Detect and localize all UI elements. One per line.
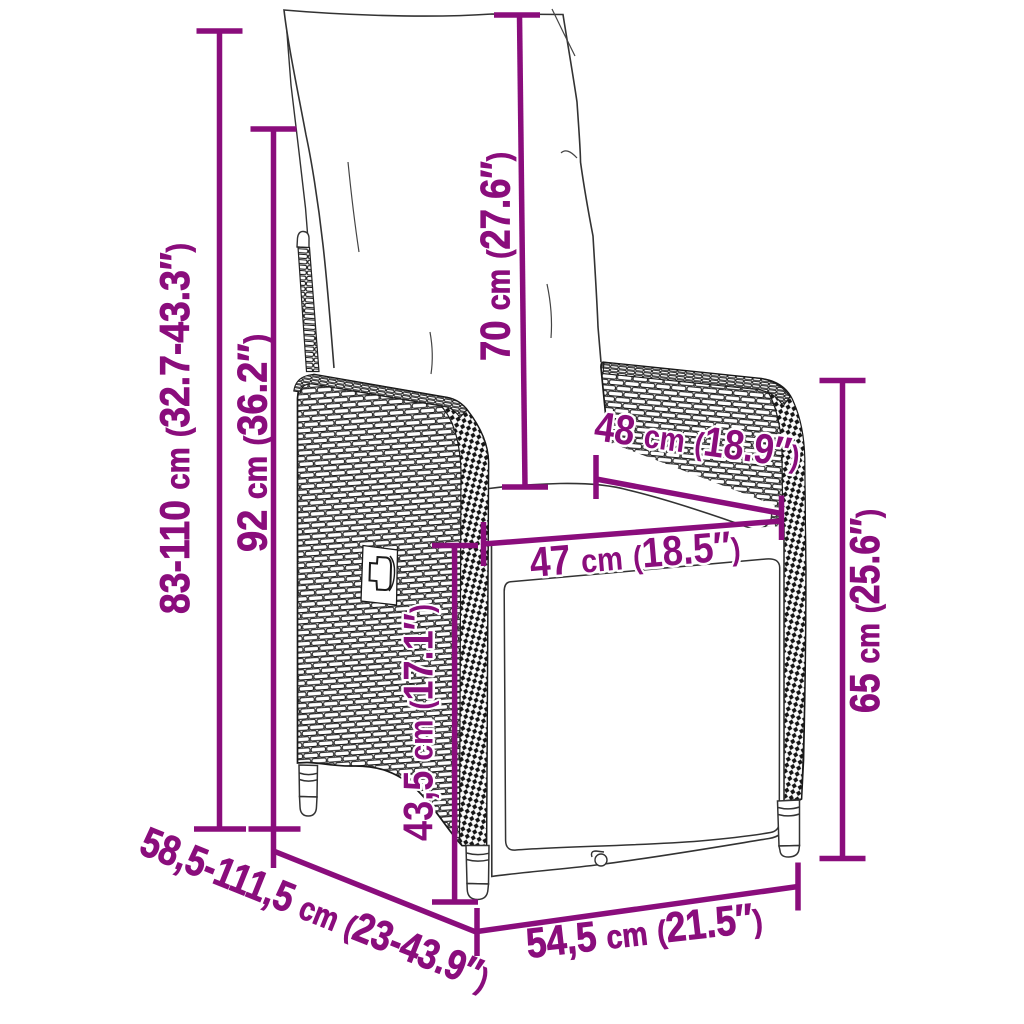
svg-text:43,5 cm (17.1″): 43,5 cm (17.1″) [395, 604, 442, 841]
svg-text:83-110 cm (32.7-43.3″): 83-110 cm (32.7-43.3″) [151, 243, 198, 614]
